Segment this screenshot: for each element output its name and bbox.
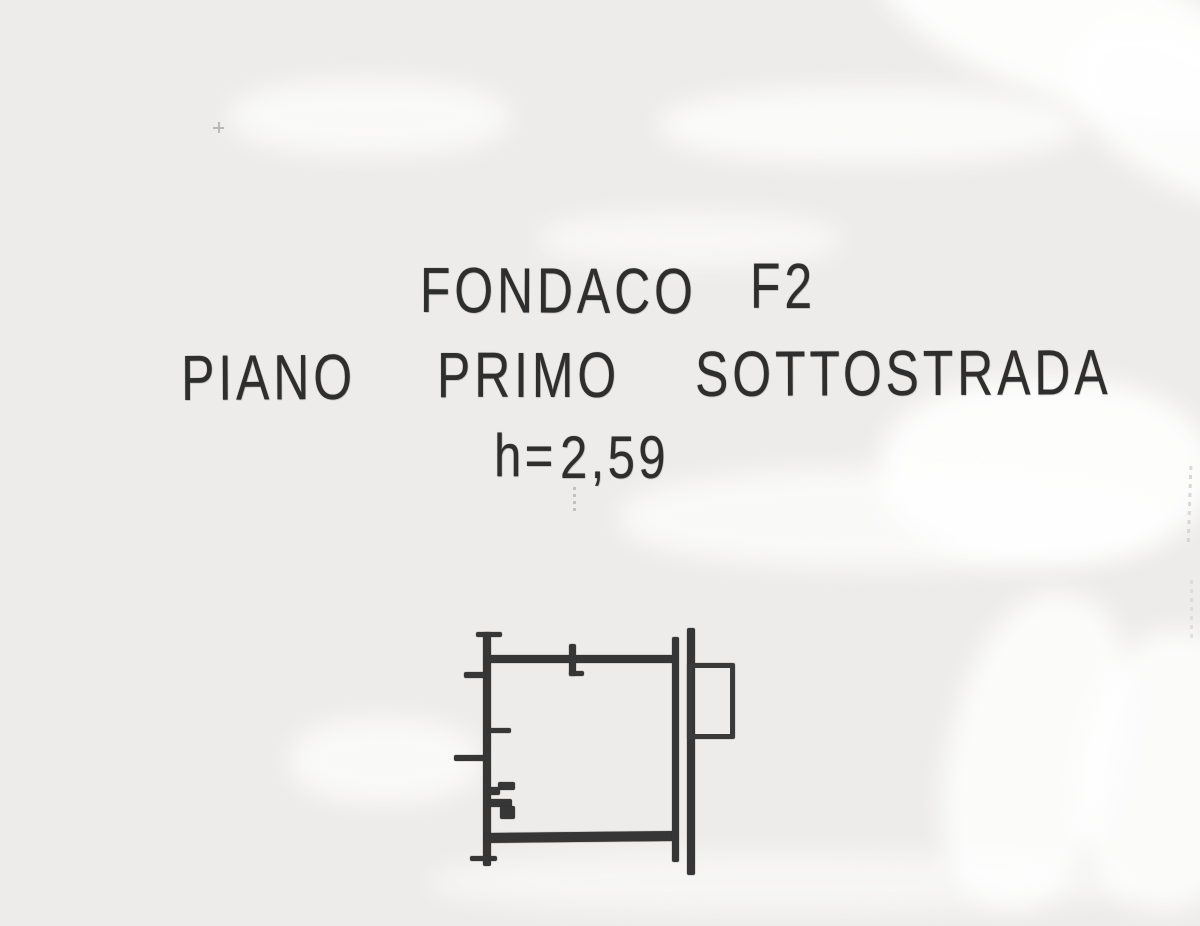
scan-streak [660,88,1080,163]
stair-scribble [498,782,515,790]
stair-scribble [500,806,515,819]
unit-code: F2 [750,254,816,318]
annex-room-outline [687,663,735,739]
scan-streak [230,80,510,155]
registration-cross-mark [213,122,224,133]
scan-streak [914,574,1156,926]
stair-scribble [488,787,500,795]
height-value: 2,59 [560,428,669,488]
floor-word-primo: PRIMO [437,343,620,407]
wall-left-foot-tick [470,856,497,861]
scan-streak [856,0,1200,164]
wall-left-inner-tick [488,728,511,733]
floor-plan-drawing [450,610,760,890]
wall-left [483,632,491,866]
building-name: FONDACO [420,258,697,323]
scan-streak [1061,619,1200,921]
wall-top [486,655,676,663]
scan-edge-mark [1190,580,1193,642]
wall-left-lower-tick [454,755,485,761]
wall-left-top-tick [476,632,502,637]
scanned-floor-plan-page: FONDACO F2 PIANO PRIMO SOTTOSTRADA h= 2,… [0,0,1200,900]
height-label: h= [494,426,557,486]
wall-left-upper-tick [464,672,485,678]
overstrike-smudge [573,487,576,513]
scan-streak [620,468,1160,568]
door-tick-foot [569,671,584,676]
wall-bottom [485,831,677,843]
scan-edge-mark [1187,466,1193,546]
wall-right-inner [672,637,679,862]
floor-word-sottostrada: SOTTOSTRADA [695,340,1112,406]
cross-vertical [218,122,220,133]
floor-word-piano: PIANO [181,345,356,410]
scan-streak [1041,0,1200,233]
